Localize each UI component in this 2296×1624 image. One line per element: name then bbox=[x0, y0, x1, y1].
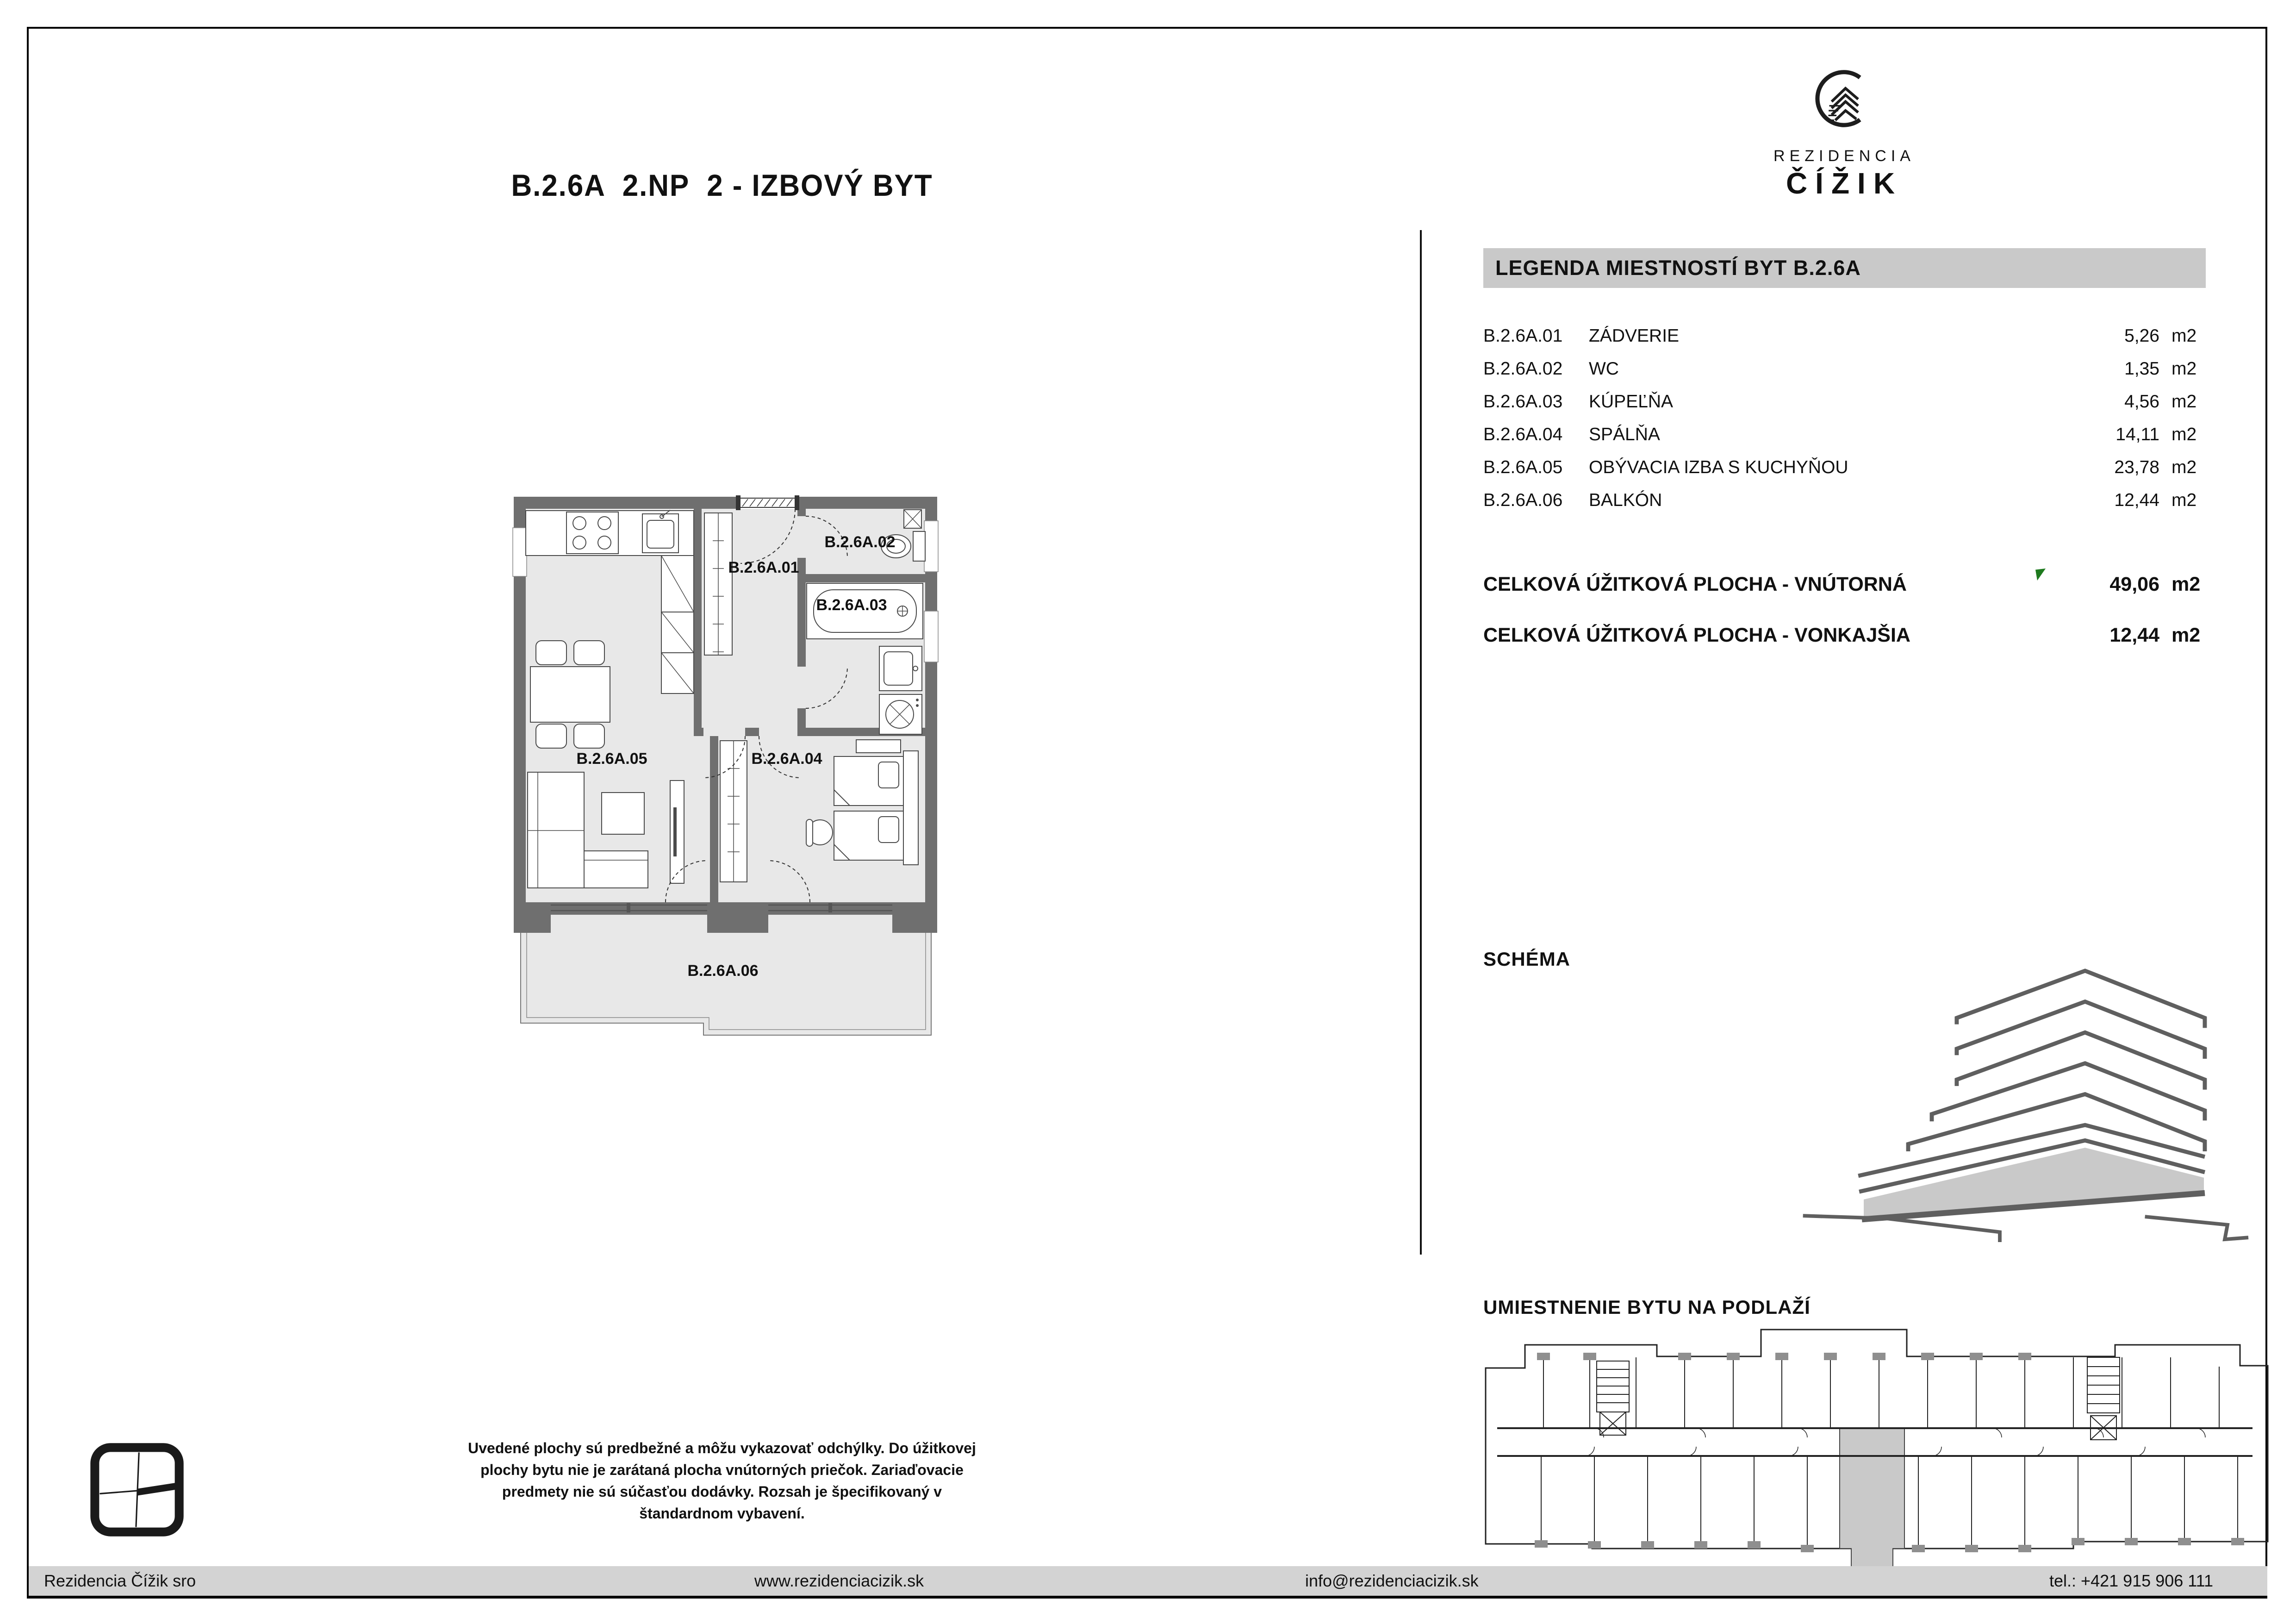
room-label-wc: B.2.6A.02 bbox=[824, 533, 895, 551]
room-label-bathroom: B.2.6A.03 bbox=[816, 596, 887, 614]
legend-row: B.2.6A.01 ZÁDVERIE 5,26 m2 bbox=[1483, 319, 2206, 352]
room-code: B.2.6A.06 bbox=[1483, 490, 1589, 511]
total-area: 12,44 bbox=[2081, 624, 2159, 647]
panel-divider-line bbox=[1420, 230, 1422, 1255]
room-unit: m2 bbox=[2159, 359, 2206, 379]
disclaimer-text: Uvedené plochy sú predbežné a môžu vykaz… bbox=[398, 1437, 1046, 1524]
total-area: 49,06 bbox=[2081, 573, 2159, 596]
hall-wardrobe bbox=[704, 513, 732, 655]
total-label: CELKOVÁ ÚŽITKOVÁ PLOCHA - VONKAJŠIA bbox=[1483, 624, 2081, 647]
building-schema-drawing bbox=[1796, 944, 2249, 1244]
legend-row: B.2.6A.04 SPÁLŇA 14,11 m2 bbox=[1483, 418, 2206, 451]
schema-section-label: SCHÉMA bbox=[1483, 948, 1570, 970]
room-name: OBÝVACIA IZBA S KUCHYŇOU bbox=[1589, 457, 2081, 478]
double-bed bbox=[834, 740, 918, 865]
location-section-label: UMIESTNENIE BYTU NA PODLAŽÍ bbox=[1483, 1296, 1811, 1318]
room-label-balcony: B.2.6A.06 bbox=[687, 962, 758, 980]
room-code: B.2.6A.03 bbox=[1483, 392, 1589, 412]
room-area: 14,11 bbox=[2081, 425, 2159, 445]
tv-cabinet bbox=[670, 781, 684, 883]
footer-email: info@rezidenciacizik.sk bbox=[1305, 1566, 1479, 1596]
brand-c-mountain-icon bbox=[1814, 55, 1874, 141]
room-name: SPÁLŇA bbox=[1589, 425, 2081, 445]
total-outer-area-row: CELKOVÁ ÚŽITKOVÁ PLOCHA - VONKAJŠIA 12,4… bbox=[1483, 624, 2206, 647]
legend-row: B.2.6A.03 KÚPEĽŇA 4,56 m2 bbox=[1483, 385, 2206, 418]
page-title: B.2.6A 2.NP 2 - IZBOVÝ BYT bbox=[417, 168, 1027, 203]
total-label: CELKOVÁ ÚŽITKOVÁ PLOCHA - VNÚTORNÁ bbox=[1483, 573, 2081, 596]
room-name: WC bbox=[1589, 359, 2081, 379]
room-unit: m2 bbox=[2159, 326, 2206, 346]
room-unit: m2 bbox=[2159, 392, 2206, 412]
room-code: B.2.6A.04 bbox=[1483, 425, 1589, 445]
total-unit: m2 bbox=[2159, 573, 2206, 596]
room-label-living: B.2.6A.05 bbox=[576, 750, 647, 768]
brand-name-top: REZIDENCIA bbox=[1752, 147, 1937, 165]
room-unit: m2 bbox=[2159, 457, 2206, 478]
disclaimer-line: plochy bytu nie je zarátaná plocha vnúto… bbox=[398, 1459, 1046, 1481]
legend-row: B.2.6A.05 OBÝVACIA IZBA S KUCHYŇOU 23,78… bbox=[1483, 451, 2206, 484]
washing-machine bbox=[879, 694, 922, 734]
sheet: B.2.6A 2.NP 2 - IZBOVÝ BYT REZIDENCIA ČÍ… bbox=[0, 0, 2296, 1624]
disclaimer-line: predmety nie sú súčasťou dodávky. Rozsah… bbox=[398, 1481, 1046, 1503]
footer-company: Rezidencia Čížik sro bbox=[44, 1566, 196, 1596]
footer-website: www.rezidenciacizik.sk bbox=[754, 1566, 924, 1596]
room-name: ZÁDVERIE bbox=[1589, 326, 2081, 346]
floor-location-plan bbox=[1479, 1325, 2271, 1587]
disclaimer-line: Uvedené plochy sú predbežné a môžu vykaz… bbox=[398, 1437, 1046, 1459]
total-inner-area-row: CELKOVÁ ÚŽITKOVÁ PLOCHA - VNÚTORNÁ 49,06… bbox=[1483, 573, 2206, 596]
footer: Rezidencia Čížik sro www.rezidenciacizik… bbox=[29, 1566, 2267, 1596]
room-label-bedroom: B.2.6A.04 bbox=[751, 750, 822, 768]
wc-vent bbox=[904, 510, 921, 528]
highlighted-unit bbox=[1840, 1428, 1904, 1574]
room-code: B.2.6A.05 bbox=[1483, 457, 1589, 478]
room-area: 5,26 bbox=[2081, 326, 2159, 346]
coffee-table bbox=[602, 793, 644, 834]
footer-phone: tel.: +421 915 906 111 bbox=[2049, 1566, 2213, 1596]
legend-row: B.2.6A.06 BALKÓN 12,44 m2 bbox=[1483, 484, 2206, 517]
total-unit: m2 bbox=[2159, 624, 2206, 647]
room-name: KÚPEĽŇA bbox=[1589, 392, 2081, 412]
room-label-hall: B.2.6A.01 bbox=[728, 559, 799, 576]
room-area: 1,35 bbox=[2081, 359, 2159, 379]
room-area: 23,78 bbox=[2081, 457, 2159, 478]
room-code: B.2.6A.01 bbox=[1483, 326, 1589, 346]
legend-row: B.2.6A.02 WC 1,35 m2 bbox=[1483, 352, 2206, 385]
legend-header: LEGENDA MIESTNOSTÍ BYT B.2.6A bbox=[1483, 248, 2206, 288]
apartment-floor-plan: B.2.6A.01 B.2.6A.02 B.2.6A.03 B.2.6A.04 … bbox=[498, 486, 983, 1074]
room-area: 12,44 bbox=[2081, 490, 2159, 511]
bedroom-wardrobe bbox=[720, 741, 747, 882]
room-code: B.2.6A.02 bbox=[1483, 359, 1589, 379]
brand-logo: REZIDENCIA ČÍŽIK bbox=[1752, 55, 1937, 200]
room-unit: m2 bbox=[2159, 425, 2206, 445]
brand-name-bottom: ČÍŽIK bbox=[1752, 166, 1937, 200]
entrance-door bbox=[736, 495, 799, 510]
room-area: 4,56 bbox=[2081, 392, 2159, 412]
legend-table: B.2.6A.01 ZÁDVERIE 5,26 m2 B.2.6A.02 WC … bbox=[1483, 319, 2206, 517]
room-name: BALKÓN bbox=[1589, 490, 2081, 511]
room-unit: m2 bbox=[2159, 490, 2206, 511]
disclaimer-line: štandardnom vybavení. bbox=[398, 1503, 1046, 1524]
bathroom-sink bbox=[879, 646, 922, 691]
orientation-icon bbox=[88, 1441, 186, 1539]
